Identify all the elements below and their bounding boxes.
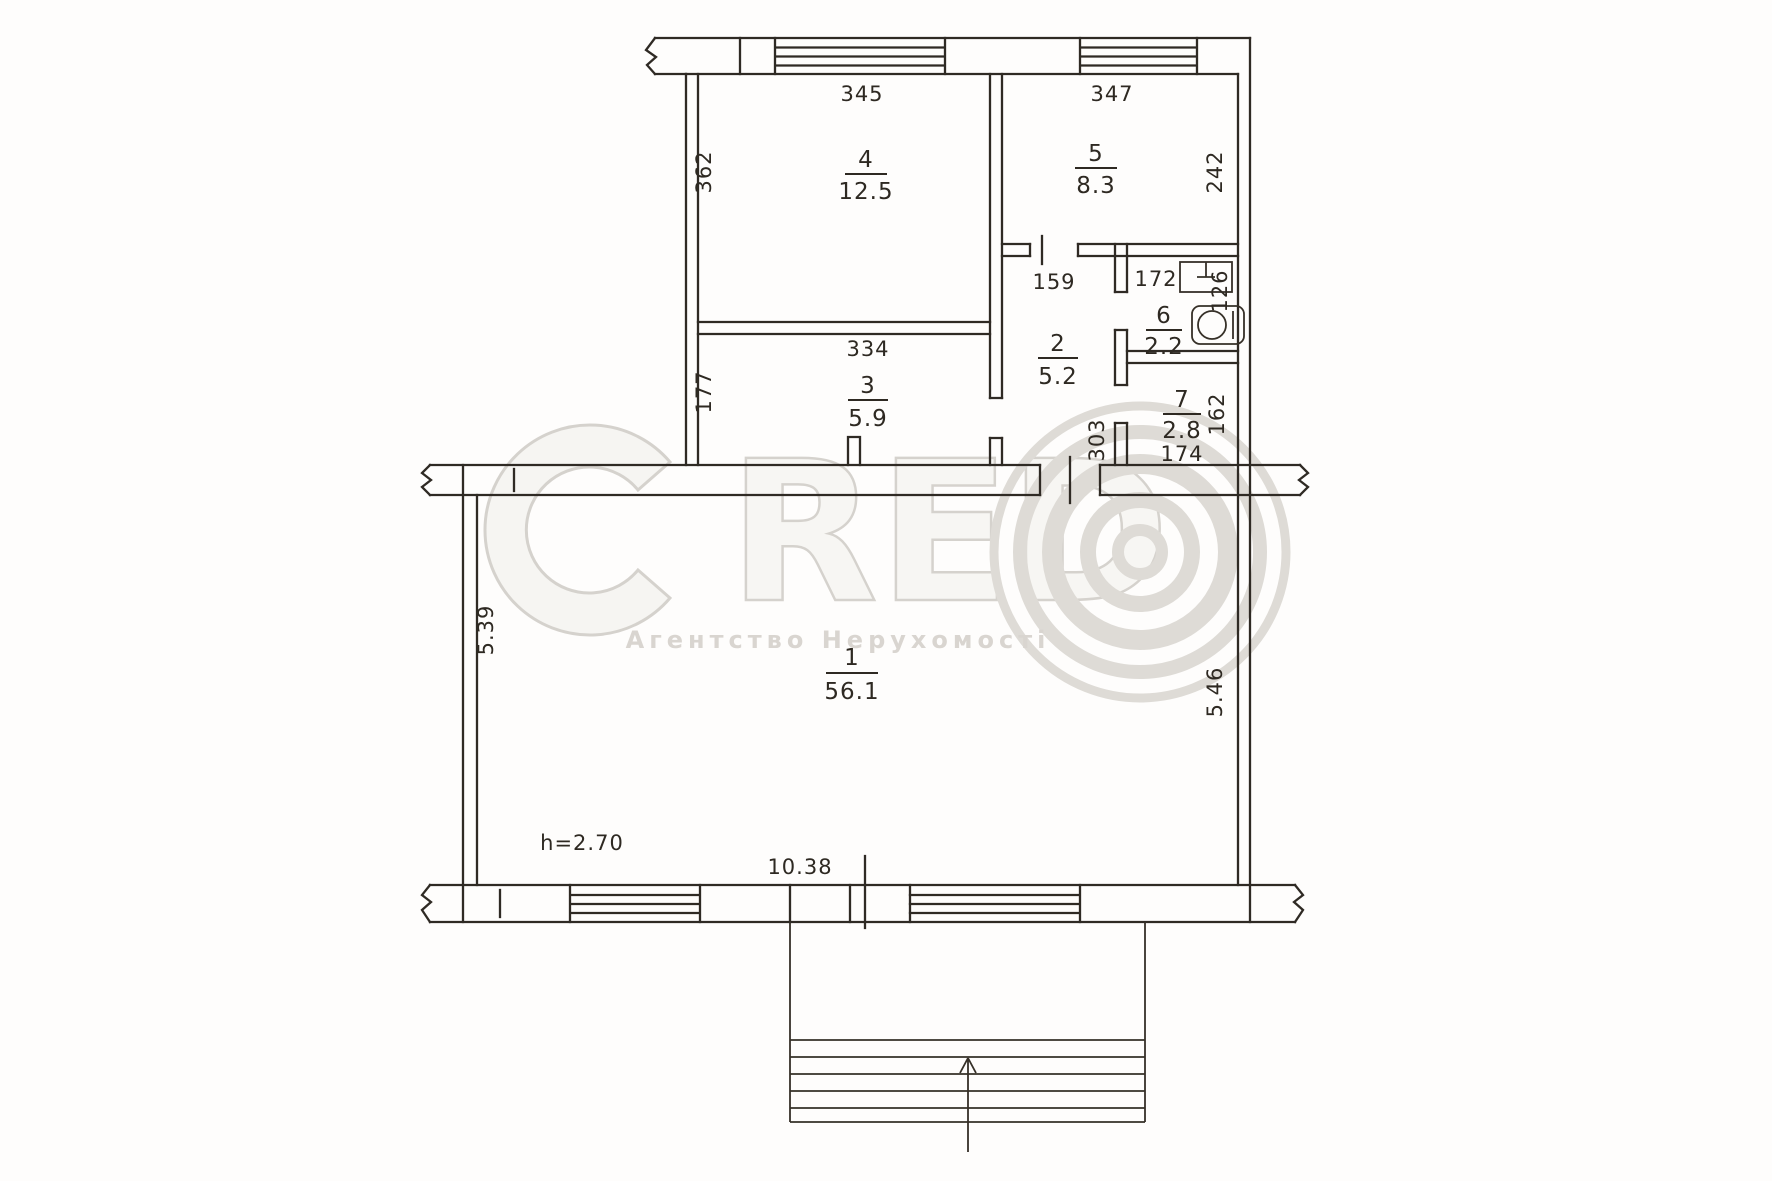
svg-text:8.3: 8.3 (1076, 173, 1116, 199)
svg-text:5: 5 (1088, 141, 1104, 167)
window-room1-right (910, 885, 1080, 922)
wall-break-mark (646, 38, 656, 74)
svg-text:1: 1 (844, 645, 860, 671)
dim-room5-width: 347 (1090, 82, 1133, 106)
svg-text:5.2: 5.2 (1038, 364, 1078, 390)
svg-text:5.9: 5.9 (848, 406, 888, 432)
entrance-arrow (960, 1058, 976, 1152)
room1-left-wall (463, 465, 477, 922)
room-label-3: 3 5.9 (848, 373, 888, 432)
room-label-2: 2 5.2 (1038, 331, 1078, 390)
dim-bathroom-depth: 126 (1208, 269, 1232, 312)
dim-room3-depth: 177 (692, 370, 716, 413)
dim-hallway-depth: 303 (1085, 418, 1109, 461)
svg-text:2.2: 2.2 (1144, 334, 1184, 360)
dim-room1-width: 10.38 (767, 855, 832, 879)
svg-text:2: 2 (1050, 331, 1066, 357)
svg-text:12.5: 12.5 (838, 179, 893, 205)
watermark-subtitle: Агентство Нерухомості (626, 626, 1051, 654)
room-label-4: 4 12.5 (838, 147, 893, 205)
floor-plan-drawing: R E D Агентство Нерухомості (0, 0, 1772, 1181)
dim-bathroom-width: 172 (1134, 267, 1177, 291)
window-room1-left (570, 885, 700, 922)
wall-break-mark (1299, 465, 1308, 495)
balcony-door (790, 885, 910, 922)
logo-c-ring (485, 425, 670, 635)
svg-text:7: 7 (1174, 387, 1190, 413)
dim-room1-left: 5.39 (474, 605, 498, 656)
window-room4 (775, 38, 945, 74)
svg-text:6: 6 (1156, 303, 1172, 329)
scanned-floor-plan-page: R E D Агентство Нерухомості (0, 0, 1772, 1181)
window-room5 (1080, 38, 1197, 74)
svg-text:56.1: 56.1 (824, 679, 879, 705)
wall-break-mark (1294, 885, 1303, 922)
room5-bottom-wall (1002, 236, 1238, 264)
wall-break-mark (422, 465, 431, 495)
dim-room7-width: 174 (1160, 442, 1203, 466)
svg-text:2.8: 2.8 (1162, 418, 1202, 444)
svg-text:3: 3 (860, 373, 876, 399)
dim-room3-width: 334 (846, 337, 889, 361)
ceiling-height-note: h=2.70 (540, 831, 624, 855)
dim-room4-width: 345 (840, 82, 883, 106)
central-divider-wall (990, 74, 1002, 465)
room-label-5: 5 8.3 (1075, 141, 1117, 199)
logo-letter-r: R (728, 419, 878, 646)
room4-room3-wall (698, 322, 990, 334)
dim-room7-depth: 162 (1205, 392, 1229, 435)
dim-room5-depth: 242 (1203, 150, 1227, 193)
bottom-exterior-wall (422, 856, 1303, 928)
svg-text:4: 4 (858, 147, 874, 173)
dim-room1-right: 5.46 (1203, 667, 1227, 718)
dim-room4-depth: 362 (692, 150, 716, 193)
dim-hallway-width: 159 (1032, 270, 1075, 294)
room-label-1: 1 56.1 (824, 645, 879, 705)
room-label-6: 6 2.2 (1144, 303, 1184, 360)
wall-break-mark (422, 885, 431, 922)
